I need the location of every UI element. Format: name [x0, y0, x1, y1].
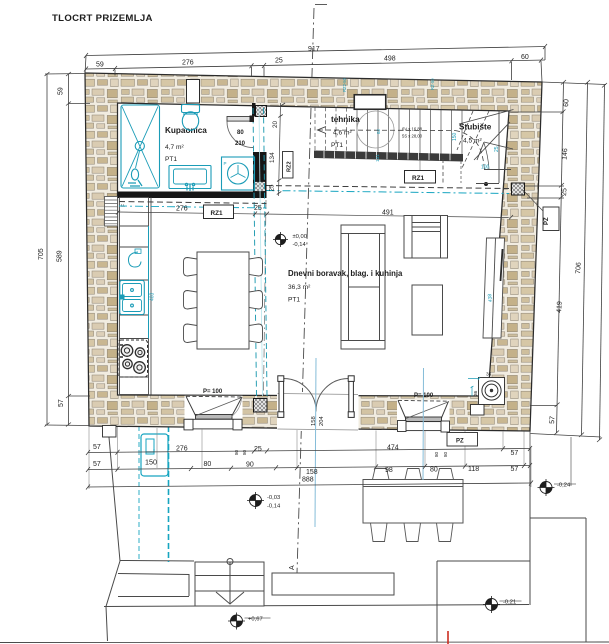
svg-text:4,7 m²: 4,7 m² — [165, 144, 184, 151]
svg-text:60: 60 — [563, 99, 571, 107]
svg-text:PZ: PZ — [456, 439, 464, 445]
svg-text:4,5 m²: 4,5 m² — [463, 138, 482, 145]
svg-text:RZ2-50: RZ2-50 — [342, 77, 347, 92]
svg-text:204: 204 — [319, 416, 325, 426]
svg-text:150: 150 — [145, 458, 157, 467]
svg-text:P= 100: P= 100 — [414, 393, 434, 399]
svg-text:5S x 28,00: 5S x 28,00 — [402, 134, 423, 139]
svg-text:-0,14: -0,14 — [267, 504, 281, 510]
svg-text:276: 276 — [176, 206, 188, 213]
svg-text:RZ2: RZ2 — [287, 161, 293, 172]
svg-text:706: 706 — [575, 262, 583, 274]
svg-text:438: 438 — [487, 293, 494, 302]
svg-text:36: 36 — [486, 372, 492, 378]
svg-text:146: 146 — [562, 148, 570, 160]
svg-text:PT1: PT1 — [331, 142, 343, 149]
svg-text:25: 25 — [254, 446, 262, 453]
svg-text:57: 57 — [511, 466, 519, 473]
svg-text:36,3 m²: 36,3 m² — [288, 284, 311, 291]
svg-text:705: 705 — [38, 248, 45, 260]
svg-text:59: 59 — [96, 62, 104, 69]
svg-text:80: 80 — [242, 449, 247, 455]
svg-text:-0,03: -0,03 — [267, 495, 280, 501]
svg-text:80: 80 — [443, 451, 448, 457]
svg-text:80: 80 — [234, 449, 239, 455]
svg-text:PZ: PZ — [544, 217, 550, 225]
svg-text:888: 888 — [302, 477, 314, 484]
svg-text:4,6 m²: 4,6 m² — [333, 130, 352, 137]
svg-text:498: 498 — [384, 56, 396, 63]
svg-text:RZ1: RZ1 — [211, 210, 224, 217]
svg-text:98: 98 — [385, 467, 393, 474]
svg-text:150: 150 — [452, 132, 458, 141]
svg-text:A: A — [289, 565, 296, 570]
svg-text:Dnevni boravak, blag. i kuhinj: Dnevni boravak, blag. i kuhinja — [288, 269, 403, 278]
svg-text:57: 57 — [93, 444, 101, 451]
svg-text:57: 57 — [58, 399, 65, 407]
svg-text:134: 134 — [269, 152, 276, 163]
svg-text:276: 276 — [176, 446, 188, 453]
svg-text:PT1: PT1 — [165, 156, 177, 163]
svg-text:-0,24: -0,24 — [557, 483, 571, 489]
svg-text:RZ1: RZ1 — [412, 175, 425, 182]
svg-text:25: 25 — [275, 58, 283, 65]
svg-text:57: 57 — [93, 461, 101, 468]
svg-text:82: 82 — [376, 128, 381, 134]
svg-text:80: 80 — [430, 467, 438, 474]
svg-text:tehnika: tehnika — [331, 115, 360, 124]
svg-text:Kupaonica: Kupaonica — [165, 126, 207, 135]
svg-text:57: 57 — [511, 450, 519, 457]
svg-text:25: 25 — [269, 184, 276, 192]
svg-text:25: 25 — [494, 146, 500, 152]
svg-text:36: 36 — [473, 390, 479, 396]
svg-text:20: 20 — [272, 120, 279, 128]
svg-text:P: P — [224, 161, 227, 166]
svg-text:RZ-50: RZ-50 — [430, 78, 435, 90]
svg-text:-0,14: -0,14 — [293, 242, 307, 248]
svg-text:403: 403 — [150, 292, 156, 301]
svg-text:276: 276 — [182, 60, 194, 67]
svg-text:131: 131 — [375, 154, 380, 162]
svg-text:80: 80 — [237, 130, 244, 136]
svg-text:419: 419 — [556, 301, 564, 313]
svg-text:P= 100: P= 100 — [203, 389, 223, 395]
svg-text:158: 158 — [306, 469, 318, 476]
svg-text:25: 25 — [561, 188, 569, 196]
svg-text:PT1: PT1 — [288, 297, 300, 304]
svg-text:57: 57 — [549, 416, 557, 424]
svg-text:Stubište: Stubište — [459, 123, 492, 132]
svg-text:118: 118 — [468, 466, 479, 473]
svg-text:60: 60 — [521, 54, 529, 61]
svg-text:80: 80 — [204, 461, 212, 468]
svg-text:917: 917 — [308, 46, 320, 53]
svg-text:90: 90 — [246, 462, 254, 469]
svg-text:+0,67: +0,67 — [248, 617, 263, 623]
svg-text:6V x 16,88: 6V x 16,88 — [402, 127, 423, 132]
svg-text:210: 210 — [235, 141, 246, 147]
svg-text:474: 474 — [387, 445, 399, 452]
svg-text:±0,00: ±0,00 — [293, 234, 307, 240]
svg-text:-0,21: -0,21 — [503, 600, 516, 606]
svg-text:80: 80 — [434, 451, 439, 457]
svg-text:589: 589 — [57, 250, 64, 262]
svg-text:25: 25 — [254, 205, 262, 212]
svg-text:491: 491 — [382, 210, 394, 217]
svg-text:100: 100 — [481, 165, 490, 171]
svg-text:TLOCRT PRIZEMLJA: TLOCRT PRIZEMLJA — [52, 13, 153, 24]
svg-text:59: 59 — [58, 87, 65, 95]
